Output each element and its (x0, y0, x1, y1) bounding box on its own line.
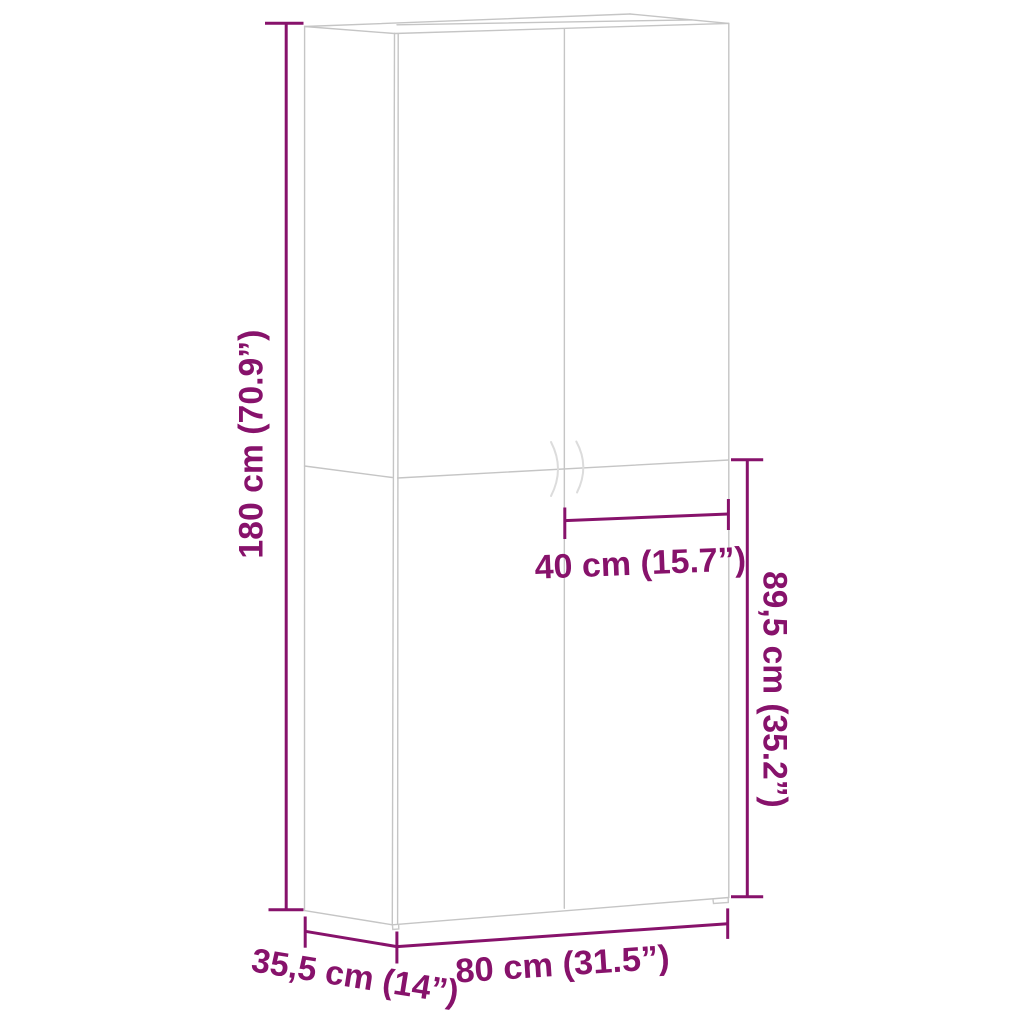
svg-text:180 cm (70.9”): 180 cm (70.9”) (233, 330, 271, 559)
svg-text:89,5 cm (35.2”): 89,5 cm (35.2”) (756, 571, 794, 808)
